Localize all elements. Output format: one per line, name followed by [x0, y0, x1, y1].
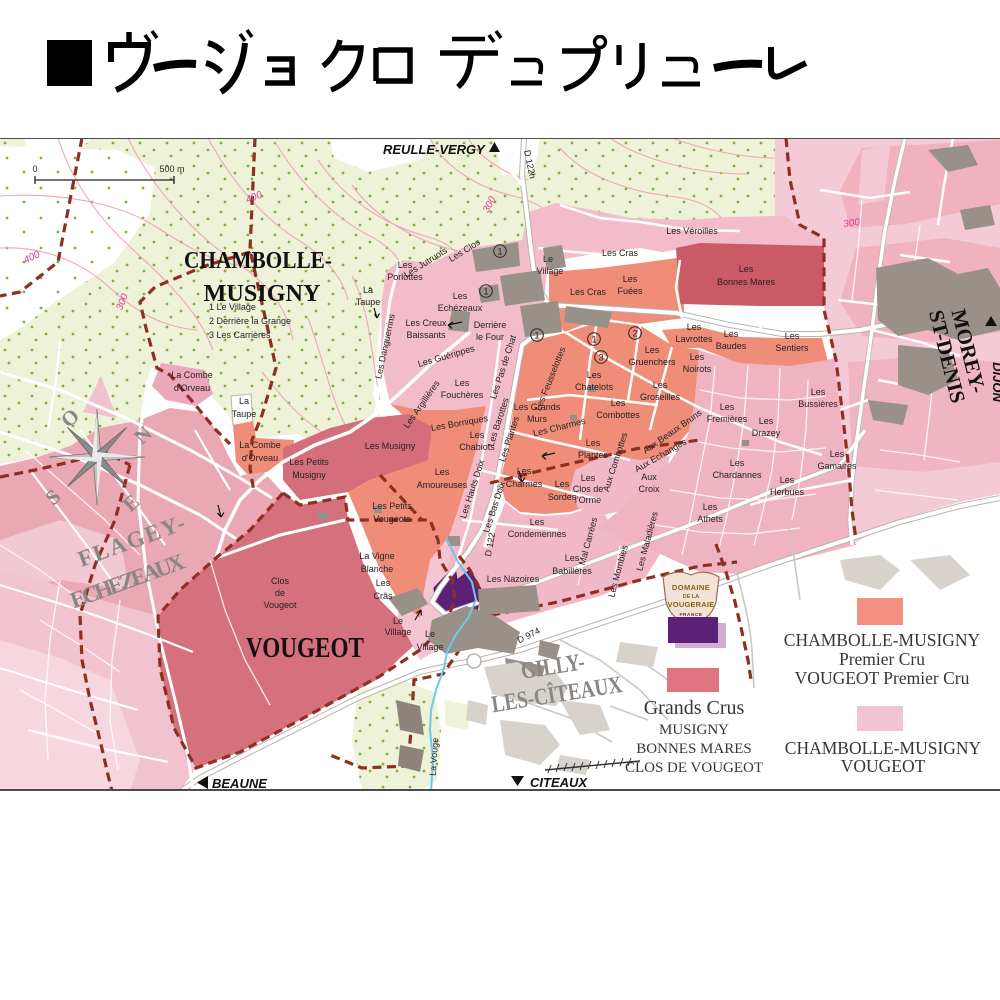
svg-text:1: 1	[497, 247, 502, 257]
svg-text:1: 1	[483, 287, 488, 297]
svg-text:DIJON: DIJON	[990, 362, 1000, 402]
svg-text:Les Cras: Les Cras	[602, 248, 639, 258]
svg-text:BONNES MARES: BONNES MARES	[636, 741, 751, 757]
svg-text:1: 1	[591, 335, 596, 345]
svg-text:VOUGEOT: VOUGEOT	[246, 633, 364, 664]
svg-text:DOMAINE: DOMAINE	[672, 583, 710, 592]
svg-text:2: 2	[632, 329, 637, 339]
svg-text:MUSIGNY: MUSIGNY	[659, 722, 729, 738]
svg-text:1 Le Village: 1 Le Village	[209, 302, 256, 312]
svg-text:0: 0	[32, 164, 37, 174]
svg-text:VOUGEOT Premier Cru: VOUGEOT Premier Cru	[795, 668, 970, 688]
svg-text:2 Derrière la Grange: 2 Derrière la Grange	[209, 316, 291, 326]
svg-text:CHAMBOLLE-: CHAMBOLLE-	[184, 247, 332, 274]
svg-text:CHAMBOLLE-MUSIGNY: CHAMBOLLE-MUSIGNY	[784, 630, 981, 650]
svg-text:CITEAUX: CITEAUX	[530, 775, 588, 790]
svg-text:REULLE-VERGY: REULLE-VERGY	[383, 142, 486, 157]
svg-text:CLOS DE VOUGEOT: CLOS DE VOUGEOT	[625, 760, 763, 776]
svg-text:CHAMBOLLE-MUSIGNY: CHAMBOLLE-MUSIGNY	[785, 738, 982, 758]
svg-text:500 m: 500 m	[159, 164, 184, 174]
svg-text:Grands Crus: Grands Crus	[644, 697, 745, 719]
svg-text:BEAUNE: BEAUNE	[212, 776, 267, 791]
svg-text:VOUGERAIE: VOUGERAIE	[668, 600, 715, 609]
svg-text:Les Cras: Les Cras	[570, 287, 607, 297]
svg-text:Premier Cru: Premier Cru	[839, 649, 925, 669]
svg-text:3 Les Carrières: 3 Les Carrières	[209, 330, 271, 340]
svg-text:3: 3	[598, 353, 603, 363]
svg-text:Les Nazoires: Les Nazoires	[487, 574, 540, 584]
svg-text:Les Musigny: Les Musigny	[365, 441, 416, 451]
svg-text:VOUGEOT: VOUGEOT	[841, 756, 926, 776]
svg-text:Les Véroilles: Les Véroilles	[666, 226, 718, 236]
svg-text:1: 1	[534, 331, 539, 341]
